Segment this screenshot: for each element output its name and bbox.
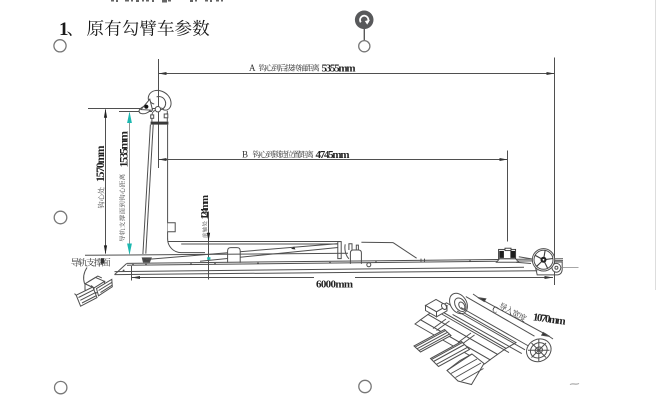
svg-text:1: 1 (59, 19, 69, 40)
svg-text:1570mm: 1570mm (95, 145, 107, 182)
svg-text:124mm: 124mm (200, 195, 211, 220)
svg-text:A: A (249, 63, 256, 73)
svg-text:5355mm: 5355mm (322, 63, 356, 75)
svg-text:B: B (242, 150, 248, 160)
svg-text:4745mm: 4745mm (316, 149, 350, 161)
svg-text:1535mm: 1535mm (117, 131, 131, 168)
svg-text:6000mm: 6000mm (316, 278, 353, 290)
